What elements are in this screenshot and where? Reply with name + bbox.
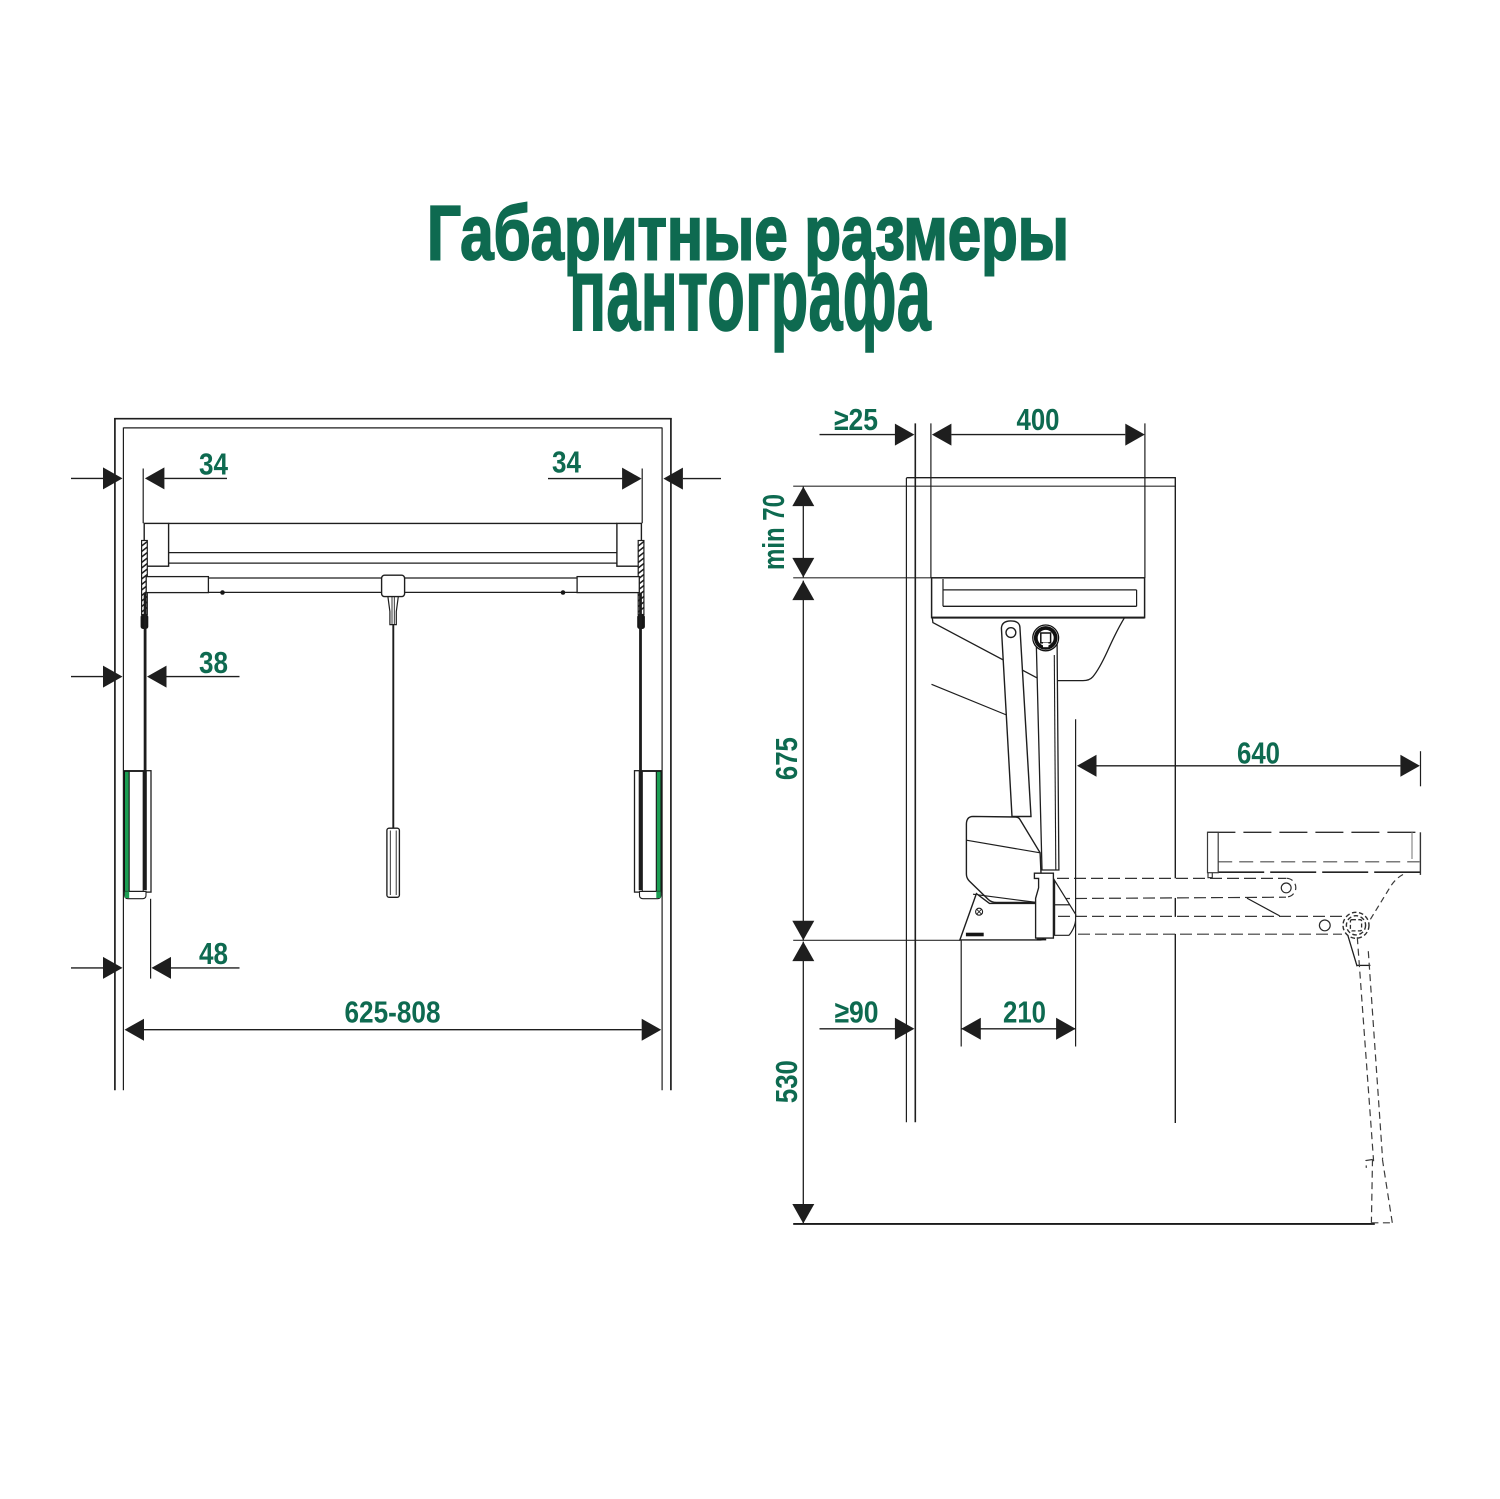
svg-text:min 70: min 70 bbox=[756, 494, 791, 570]
svg-text:210: 210 bbox=[1003, 995, 1046, 1030]
svg-text:640: 640 bbox=[1237, 736, 1280, 771]
svg-text:34: 34 bbox=[199, 446, 229, 481]
svg-text:400: 400 bbox=[1017, 402, 1060, 437]
svg-text:пантографа: пантографа bbox=[569, 235, 932, 353]
svg-text:675: 675 bbox=[769, 737, 804, 780]
svg-text:≥25: ≥25 bbox=[834, 402, 878, 437]
svg-text:530: 530 bbox=[769, 1060, 804, 1103]
svg-text:48: 48 bbox=[199, 936, 228, 971]
svg-text:38: 38 bbox=[199, 645, 228, 680]
svg-text:34: 34 bbox=[552, 445, 582, 480]
svg-text:≥90: ≥90 bbox=[835, 995, 879, 1030]
svg-text:625-808: 625-808 bbox=[345, 994, 441, 1029]
